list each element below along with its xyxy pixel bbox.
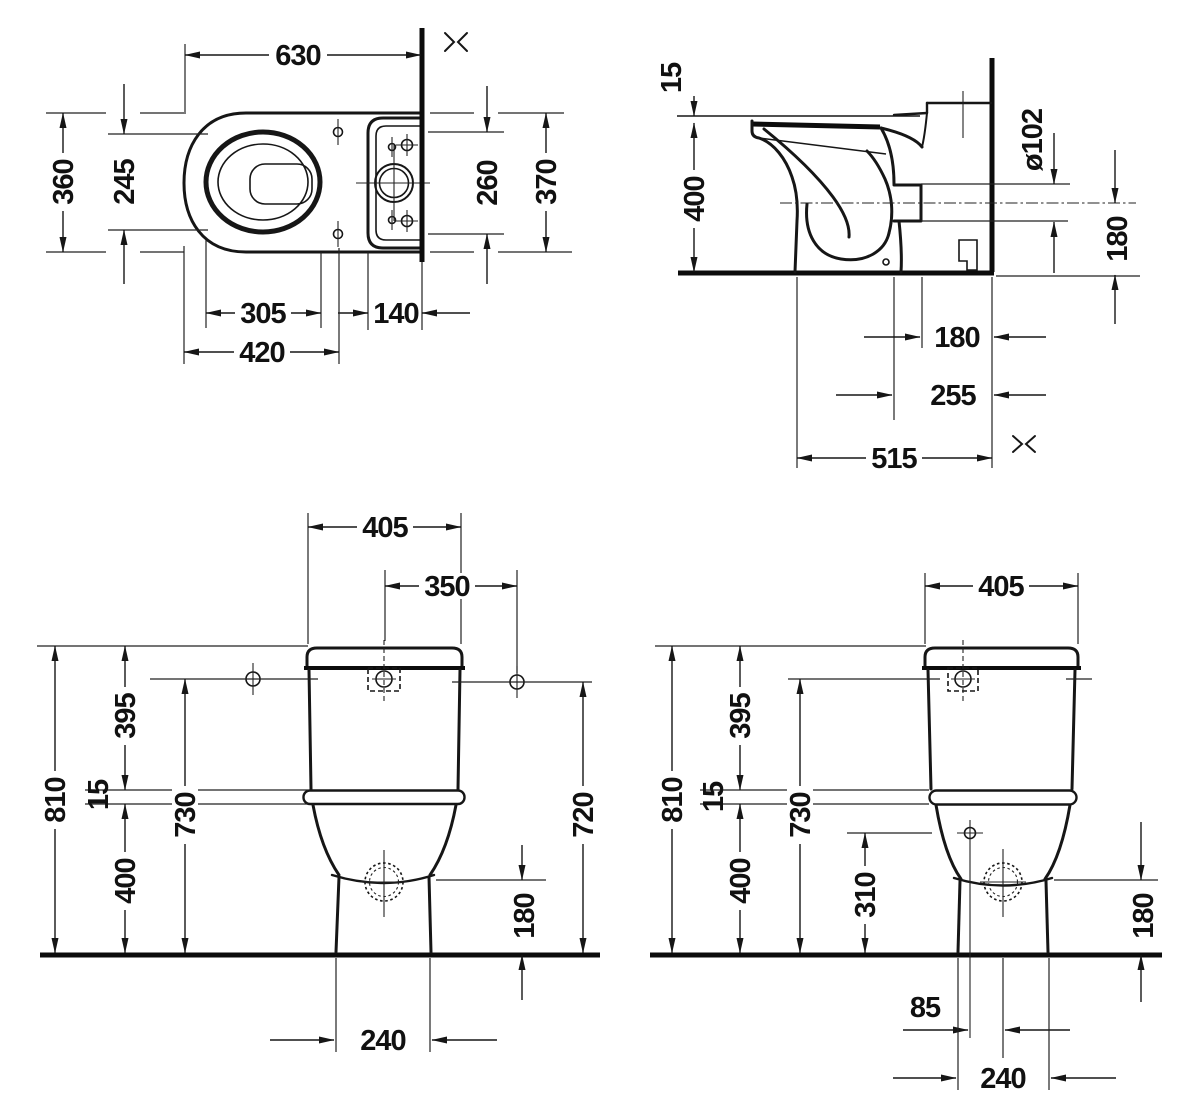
plan-seat-hinge-holes-icon <box>334 119 343 247</box>
dim-back-left-hole-height: 730 <box>170 679 202 953</box>
dim-label: 240 <box>360 1025 405 1057</box>
dim-label: 180 <box>509 893 541 938</box>
front-toilet-outline <box>922 648 1081 952</box>
dim-front-bowl-height: 400 <box>725 804 757 953</box>
dim-back-bowl-height: 400 <box>110 804 142 953</box>
dim-front-base-width: 240 <box>893 958 1116 1095</box>
dim-front-tank-height: 395 <box>725 646 757 790</box>
front-view: 405 810 395 15 400 730 <box>650 571 1162 1095</box>
dim-label: 15 <box>83 779 115 810</box>
plan-view: 630 360 245 260 <box>46 28 572 369</box>
dim-label: 240 <box>980 1063 1025 1095</box>
dim-label: 260 <box>472 160 504 205</box>
dim-front-side-hole-height: 310 <box>847 833 932 953</box>
dim-label: 180 <box>1102 216 1134 261</box>
dim-label: 85 <box>910 992 941 1024</box>
dim-label: 140 <box>373 298 418 330</box>
dim-side-bowl-height: 400 <box>679 123 711 272</box>
dim-label: 405 <box>362 512 408 544</box>
dim-side-outlet-center-height: 180 <box>996 150 1140 324</box>
dim-label: 305 <box>240 298 286 330</box>
break-symbol-icon <box>1013 436 1035 452</box>
side-cistern-outline <box>881 91 991 147</box>
side-pan-outline <box>752 121 921 272</box>
dim-back-outlet-height: 180 <box>436 845 546 1000</box>
dim-label: 395 <box>110 692 142 738</box>
dim-front-outlet-offset: 85 <box>903 992 1070 1030</box>
side-view: 15 400 ø102 180 <box>656 58 1140 475</box>
dim-label: 245 <box>109 158 141 204</box>
back-outlet-icon <box>361 850 407 917</box>
dim-label: 15 <box>698 781 730 812</box>
back-inlet-icon <box>368 640 400 704</box>
dim-label: 730 <box>785 792 817 837</box>
dim-label: 810 <box>40 777 72 822</box>
dim-label: 420 <box>239 337 284 369</box>
dim-label: 400 <box>679 176 711 221</box>
dim-label: 400 <box>110 858 142 903</box>
break-symbol-icon <box>445 33 467 51</box>
dim-label: 180 <box>1128 893 1160 938</box>
dim-back-center-to-hole: 350 <box>385 570 517 673</box>
dim-side-outlet-diameter: ø102 <box>921 109 1070 273</box>
dim-label: 370 <box>531 159 563 204</box>
plan-seat-ring <box>206 132 320 232</box>
front-side-fixing-hole-icon <box>957 820 983 1038</box>
dim-front-overall-height: 810 <box>657 646 689 953</box>
dim-label: 395 <box>725 692 757 738</box>
plan-seat-opening <box>218 144 308 220</box>
dim-back-right-hole-height: 720 <box>568 682 600 953</box>
dim-label: 180 <box>934 322 979 354</box>
dim-side-trap-to-wall: 255 <box>836 380 1046 412</box>
dim-front-hole-height: 730 <box>785 679 817 953</box>
dim-label: 720 <box>568 792 600 837</box>
dim-label: 730 <box>170 792 202 837</box>
dim-side-seat-thickness: 15 <box>656 62 694 116</box>
dim-front-outlet-height: 180 <box>1054 822 1160 1002</box>
back-view: 405 350 810 395 15 40 <box>37 512 600 1057</box>
dim-plan-tank-inner-width: 260 <box>428 86 504 284</box>
dim-label: 405 <box>978 571 1024 603</box>
dim-label: 400 <box>725 858 757 903</box>
dim-label: 255 <box>930 380 976 412</box>
dim-label: 310 <box>850 872 882 917</box>
dim-side-outlet-to-wall: 180 <box>864 322 1046 354</box>
dim-label: 15 <box>656 62 688 93</box>
toilet-dimension-diagram: 630 360 245 260 <box>0 0 1200 1108</box>
dim-front-tank-width: 405 <box>925 571 1078 644</box>
dim-plan-tank-to-wall: 140 <box>338 252 470 330</box>
dim-back-tank-height: 395 <box>110 646 142 790</box>
dim-label: ø102 <box>1017 109 1049 171</box>
dim-label: 360 <box>48 159 80 204</box>
dim-back-base-width: 240 <box>270 958 497 1057</box>
dim-plan-seat-width: 245 <box>108 84 208 284</box>
dim-label: 810 <box>657 777 689 822</box>
floor-fixing-bracket-icon <box>959 240 977 270</box>
dim-label: 630 <box>275 40 320 72</box>
dim-side-front-to-wall: 515 <box>797 443 992 475</box>
dim-label: 350 <box>424 571 469 603</box>
plan-water-surface <box>250 164 312 204</box>
dim-plan-overall-length: 630 <box>185 40 421 114</box>
dim-label: 515 <box>871 443 917 475</box>
technical-drawing-page: 630 360 245 260 <box>0 0 1200 1108</box>
dim-back-overall-height: 810 <box>40 646 72 953</box>
